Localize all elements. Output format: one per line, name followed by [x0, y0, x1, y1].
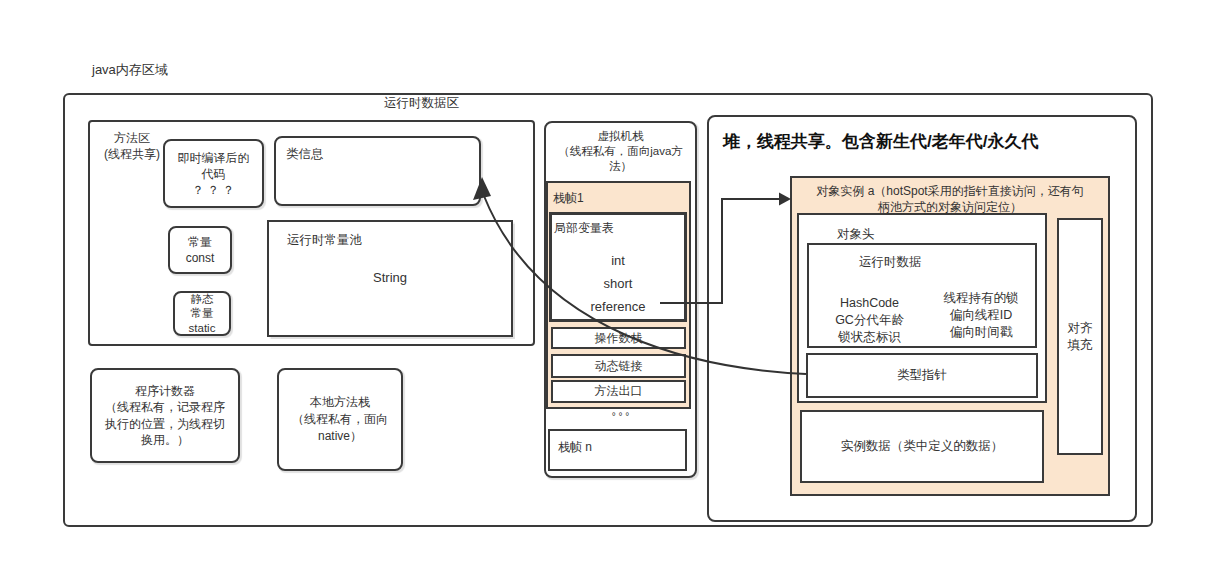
alignment-padding-box: 对齐 填充 — [1057, 218, 1103, 455]
runtime-data-label: 运行时数据 — [859, 254, 922, 271]
stack-frame-n-label: 栈帧 n — [558, 439, 592, 456]
stack-frame-1-label: 栈帧1 — [553, 190, 584, 207]
program-counter-box: 程序计数器 （线程私有，记录程序 执行的位置，为线程切 换用。） — [90, 368, 240, 463]
jit-code-box: 即时编译后的 代码 ？ ？ ？ — [163, 139, 264, 208]
local-var-reference: reference — [552, 299, 684, 314]
instance-data-box: 实例数据（类中定义的数据） — [800, 410, 1044, 483]
local-var-int: int — [552, 253, 684, 268]
java-memory-diagram: java内存区域 运行时数据区 方法区 (线程共享) 即时编译后的 代码 ？ ？… — [0, 0, 1216, 587]
stack-frame-n-box: 栈帧 n — [548, 429, 687, 471]
local-variable-table-box: 局部变量表 int short reference — [549, 212, 687, 322]
dynamic-link-box: 动态链接 — [551, 354, 686, 378]
runtime-data-box: 运行时数据 HashCode GC分代年龄 锁状态标识 线程持有的锁 偏向线程I… — [807, 243, 1037, 348]
method-exit-box: 方法出口 — [551, 380, 686, 403]
page-title: java内存区域 — [92, 61, 168, 79]
class-info-label: 类信息 — [286, 146, 324, 163]
type-pointer-box: 类型指针 — [806, 353, 1038, 398]
object-header-label: 对象头 — [837, 226, 875, 243]
native-method-stack-box: 本地方法栈 （线程私有，面向 native） — [277, 368, 403, 471]
frames-ellipsis: ° ° ° — [544, 411, 697, 422]
operand-stack-box: 操作数栈 — [551, 327, 686, 349]
const-box: 常量 const — [168, 226, 232, 274]
runtime-data-right-column: 线程持有的锁 偏向线程ID 偏向时间戳 — [925, 290, 1037, 341]
vm-stack-title: 虚拟机栈 （线程私有，面向java方 法） — [544, 129, 697, 174]
runtime-constant-pool-label: 运行时常量池 — [287, 232, 362, 249]
string-item: String — [269, 270, 511, 285]
object-instance-title: 对象实例 a（hotSpot采用的指针直接访问，还有句 柄池方式的对象访问定位） — [792, 183, 1108, 215]
runtime-data-left-column: HashCode GC分代年龄 锁状态标识 — [817, 295, 922, 346]
local-var-short: short — [552, 276, 684, 291]
class-info-box: 类信息 — [274, 136, 481, 206]
local-variable-table-label: 局部变量表 — [554, 220, 614, 237]
static-const-box: 静态 常量 static — [173, 291, 231, 336]
heap-title: 堆，线程共享。包含新生代/老年代/永久代 — [723, 130, 1038, 153]
runtime-data-area-label: 运行时数据区 — [384, 95, 459, 112]
method-area-label: 方法区 (线程共享) — [94, 130, 170, 162]
runtime-constant-pool-box: 运行时常量池 String — [267, 220, 513, 337]
